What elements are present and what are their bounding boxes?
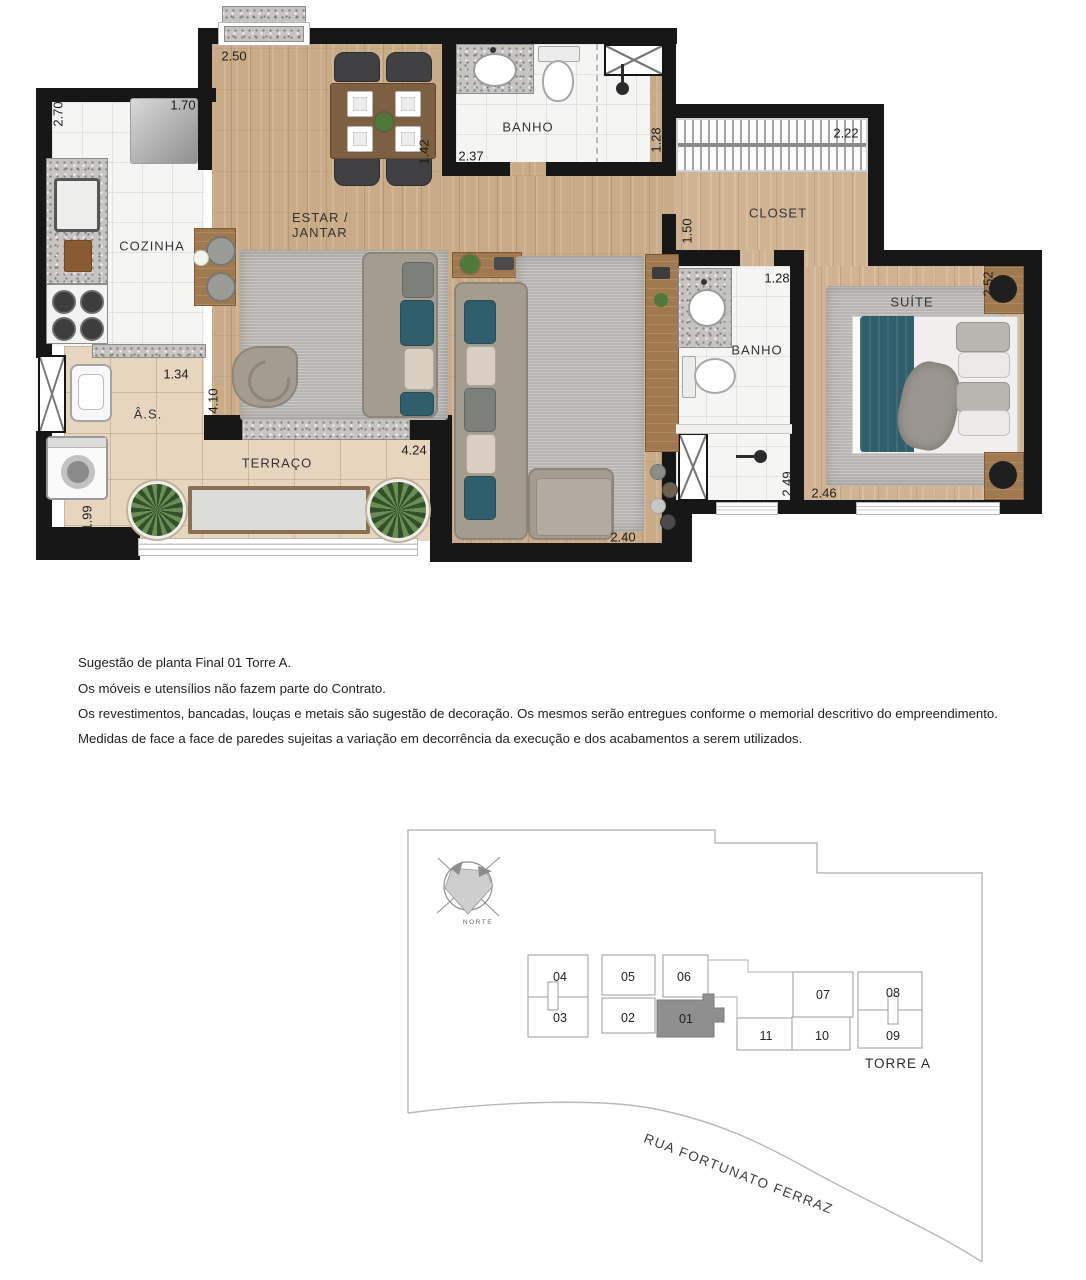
stool: [206, 272, 236, 302]
street-curve: [408, 1102, 982, 1262]
pouf: [650, 464, 666, 480]
terrace-railing: [138, 538, 418, 556]
sectional-sofa: [454, 282, 528, 540]
living-window-sill: [224, 26, 304, 42]
unit-label-06: 06: [677, 970, 691, 984]
social-bath-door-opening: [510, 162, 546, 176]
dim-banho-social-shower: 1.28: [649, 127, 664, 152]
suite-bath-door-opening: [740, 250, 774, 266]
dim-as-top: 1.34: [163, 367, 188, 382]
dining-chair: [386, 52, 432, 82]
suite-bath-window: [716, 502, 778, 515]
flower-vase: [193, 250, 209, 266]
pillow: [958, 352, 1010, 378]
unit-label-09: 09: [886, 1029, 900, 1043]
laundry-sink: [70, 364, 112, 422]
street-label: RUA FORTUNATO FERRAZ: [642, 1131, 836, 1217]
unit-label-03: 03: [553, 1011, 567, 1025]
sofa: [362, 252, 438, 418]
closet-door-opening: [662, 176, 676, 214]
dim-as-left-h: 1.99: [80, 505, 95, 530]
dim-suite-right: 2.52: [981, 271, 996, 296]
shower-arm: [736, 455, 756, 458]
pillow: [958, 410, 1010, 436]
dim-cozinha-left: 2.70: [51, 101, 66, 126]
room-label-banho-social: BANHO: [502, 120, 553, 135]
page: COZINHA ESTAR / JANTAR BANHO CLOSET BANH…: [0, 0, 1086, 1280]
pillow: [956, 382, 1010, 412]
kitchen-counter-strip: [92, 344, 206, 358]
toilet: [694, 358, 736, 394]
dim-closet-left: 1.50: [680, 218, 695, 243]
bath-counter: [456, 44, 534, 94]
washing-machine: [46, 436, 108, 500]
stool: [206, 236, 236, 266]
dim-estar-bottom: 2.40: [610, 530, 635, 545]
note-line: Medidas de face a face de paredes sujeit…: [78, 731, 802, 746]
unit-label-10: 10: [815, 1029, 829, 1043]
estar-line2: JANTAR: [292, 225, 349, 240]
floor-plan: COZINHA ESTAR / JANTAR BANHO CLOSET BANH…: [0, 0, 1086, 610]
pillow: [956, 322, 1010, 352]
wall: [868, 250, 1040, 266]
room-label-closet: CLOSET: [749, 206, 807, 221]
dim-banho-social-w: 2.37: [458, 149, 483, 164]
dining-chair: [334, 52, 380, 82]
unit-label-01: 01: [679, 1012, 693, 1026]
wall: [442, 162, 676, 176]
room-label-banho-suite: BANHO: [731, 343, 782, 358]
wall: [430, 543, 680, 562]
plant: [370, 482, 426, 538]
wall: [442, 44, 456, 176]
terrace-bench: [188, 486, 370, 534]
unit-label-08: 08: [886, 986, 900, 1000]
wall: [198, 28, 212, 170]
room-label-estar-jantar: ESTAR / JANTAR: [292, 210, 349, 240]
pouf: [662, 482, 678, 498]
sideboard: [645, 254, 679, 452]
note-line: Sugestão de planta Final 01 Torre A.: [78, 655, 291, 670]
bath-counter: [678, 268, 732, 348]
unit-label-07: 07: [816, 988, 830, 1002]
shaft-duct: [678, 433, 708, 501]
terrace-window-sill: [242, 418, 410, 440]
shaft-duct: [38, 355, 66, 433]
suite-window: [856, 502, 1000, 515]
toilet: [542, 60, 574, 102]
room-label-terraco: TERRAÇO: [242, 456, 313, 471]
kitchen-sink: [54, 178, 100, 232]
dim-estar-top: 2.50: [221, 49, 246, 64]
shower-threshold: [676, 424, 792, 434]
wall: [1024, 250, 1042, 514]
unit-label-02: 02: [621, 1011, 635, 1025]
table-plant: [375, 113, 393, 131]
unit-label-04: 04: [553, 970, 567, 984]
unit-label-11: 11: [760, 1029, 773, 1043]
armchair: [232, 346, 298, 408]
north-label: NORTE: [463, 919, 493, 926]
site-plan: NORTE 04 05 06 03 02 01: [0, 820, 1086, 1280]
sofa-chaise: [528, 468, 614, 540]
wall: [204, 415, 242, 440]
shaft-duct: [604, 44, 664, 76]
dim-cozinha-top: 1.70: [170, 98, 195, 113]
room-label-area-servico: Â.S.: [134, 407, 163, 422]
block-connector: [708, 960, 793, 972]
elevator-core: [548, 982, 558, 1010]
room-label-cozinha: COZINHA: [119, 239, 185, 254]
dining-chair: [334, 156, 380, 186]
elevator-core: [888, 996, 898, 1024]
wall: [662, 104, 884, 118]
estar-line1: ESTAR /: [292, 210, 349, 225]
cutting-board: [64, 240, 92, 272]
pouf: [650, 498, 666, 514]
pouf: [660, 514, 676, 530]
dim-suite-bottom: 2.46: [811, 486, 836, 501]
tower-footprint: [528, 955, 922, 1050]
stove: [46, 284, 108, 344]
dim-terraco-w: 4.24: [401, 443, 426, 458]
note-line: Os revestimentos, bancadas, louças e met…: [78, 706, 998, 721]
lamp: [989, 461, 1017, 489]
shower-arm: [621, 64, 624, 84]
north-arrow: NORTE: [437, 857, 500, 926]
console-plant: [461, 255, 479, 273]
wall: [36, 527, 140, 560]
shower-divider-line: [596, 44, 600, 164]
dim-banho-suite-shower: 2.49: [780, 471, 795, 496]
dim-banho-suite-top: 1.28: [764, 271, 789, 286]
dim-closet-top: 2.22: [833, 126, 858, 141]
tower-label: TORRE A: [865, 1056, 931, 1071]
plant: [131, 484, 183, 536]
dim-estar-left-h: 4.10: [206, 388, 221, 413]
wall: [868, 104, 884, 264]
room-label-suite: SUÍTE: [890, 295, 933, 310]
console-tray: [494, 257, 514, 270]
note-line: Os móveis e utensílios não fazem parte d…: [78, 681, 386, 696]
dim-estar-banho: 1.42: [417, 139, 432, 164]
unit-label-05: 05: [621, 970, 635, 984]
